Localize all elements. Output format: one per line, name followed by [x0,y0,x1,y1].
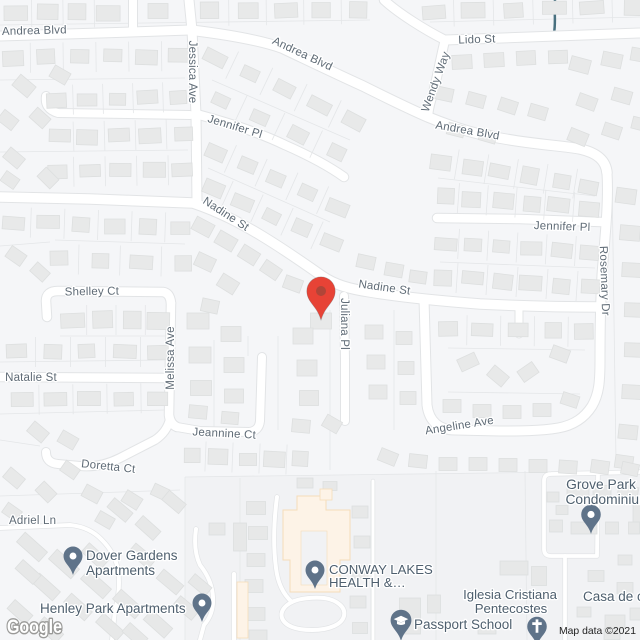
svg-text:Casa de c: Casa de c [583,589,640,604]
svg-text:Condominium: Condominium [565,492,640,507]
svg-text:Shelley Ct: Shelley Ct [65,286,120,299]
svg-text:Andrea Blvd: Andrea Blvd [2,24,67,38]
svg-text:Passport School: Passport School [414,617,512,632]
svg-text:Jessica Ave: Jessica Ave [186,41,198,104]
svg-text:Grove Park: Grove Park [566,477,636,492]
svg-text:Pentecostes: Pentecostes [475,601,548,616]
svg-text:Jennifer Pl: Jennifer Pl [534,220,591,234]
svg-text:Apartments: Apartments [86,563,155,578]
svg-text:Iglesia Cristiana: Iglesia Cristiana [463,587,557,602]
svg-text:Lido St: Lido St [458,33,496,46]
svg-text:Juliana Pl: Juliana Pl [338,298,350,350]
svg-text:Google: Google [7,616,62,638]
svg-text:Adriel Ln: Adriel Ln [9,515,56,527]
svg-text:Dover Gardens: Dover Gardens [86,548,178,563]
svg-text:Map data ©2021: Map data ©2021 [559,625,636,637]
svg-text:HEALTH &…: HEALTH &… [329,575,406,590]
svg-text:Rosemary Dr: Rosemary Dr [597,246,611,316]
svg-text:Henley Park Apartments: Henley Park Apartments [40,601,186,616]
svg-text:Natalie St: Natalie St [5,372,57,384]
svg-text:Melissa Ave: Melissa Ave [165,326,177,389]
